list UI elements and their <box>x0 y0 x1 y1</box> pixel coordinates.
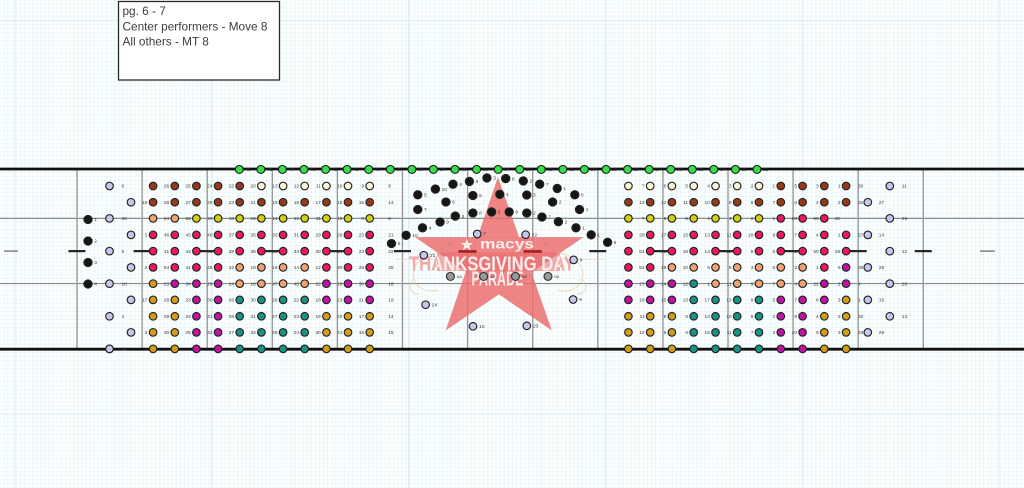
svg-text:4: 4 <box>459 182 462 188</box>
svg-text:3: 3 <box>838 298 841 304</box>
svg-text:4: 4 <box>506 192 509 198</box>
svg-text:43: 43 <box>185 233 191 239</box>
svg-text:25: 25 <box>207 200 213 206</box>
svg-text:23: 23 <box>337 298 343 304</box>
svg-text:★: ★ <box>461 237 474 253</box>
svg-text:28: 28 <box>359 265 365 271</box>
svg-text:24: 24 <box>185 314 191 320</box>
svg-text:15: 15 <box>705 330 711 336</box>
svg-text:All others - MT 8: All others - MT 8 <box>123 35 210 49</box>
svg-text:23: 23 <box>359 249 365 255</box>
svg-text:30: 30 <box>858 184 864 190</box>
svg-text:33: 33 <box>858 330 864 336</box>
svg-text:53: 53 <box>639 265 645 271</box>
svg-text:28: 28 <box>164 200 170 206</box>
svg-text:7: 7 <box>483 232 486 238</box>
svg-text:2: 2 <box>94 239 97 245</box>
svg-text:11: 11 <box>683 200 688 206</box>
svg-text:9: 9 <box>729 200 732 206</box>
svg-text:2: 2 <box>838 281 841 287</box>
svg-text:11: 11 <box>727 281 732 287</box>
svg-text:macys: macys <box>480 237 534 252</box>
svg-text:15: 15 <box>661 298 667 304</box>
svg-text:24: 24 <box>432 302 438 308</box>
svg-text:18: 18 <box>122 347 128 353</box>
svg-text:14: 14 <box>705 314 711 320</box>
svg-text:2: 2 <box>794 265 797 271</box>
svg-text:7: 7 <box>424 207 427 213</box>
svg-text:8: 8 <box>515 210 518 216</box>
svg-text:22: 22 <box>229 184 235 190</box>
svg-text:6: 6 <box>729 265 732 271</box>
svg-text:2: 2 <box>751 216 754 222</box>
svg-text:9: 9 <box>361 184 364 190</box>
svg-text:1: 1 <box>586 207 589 213</box>
svg-text:21: 21 <box>359 298 365 304</box>
svg-text:12: 12 <box>683 281 689 287</box>
svg-text:27: 27 <box>272 314 278 320</box>
svg-text:3: 3 <box>751 265 754 271</box>
svg-text:20: 20 <box>337 314 343 320</box>
svg-text:3: 3 <box>493 176 496 182</box>
svg-text:17: 17 <box>705 298 711 304</box>
svg-text:2: 2 <box>530 179 533 185</box>
svg-text:8: 8 <box>388 216 391 222</box>
svg-text:24: 24 <box>229 281 235 287</box>
svg-text:14: 14 <box>879 233 885 239</box>
svg-text:42: 42 <box>229 265 235 271</box>
svg-text:16: 16 <box>639 298 645 304</box>
svg-text:5: 5 <box>479 193 482 199</box>
svg-text:8: 8 <box>512 176 515 182</box>
svg-text:12: 12 <box>294 184 300 190</box>
svg-text:31: 31 <box>250 314 256 320</box>
svg-text:10: 10 <box>683 265 689 271</box>
svg-text:7: 7 <box>794 298 797 304</box>
svg-text:46: 46 <box>164 233 170 239</box>
svg-text:18: 18 <box>359 330 365 336</box>
svg-text:1: 1 <box>773 216 776 222</box>
svg-text:10: 10 <box>748 233 754 239</box>
svg-text:5: 5 <box>773 298 776 304</box>
svg-text:27: 27 <box>879 200 885 206</box>
svg-text:16: 16 <box>272 265 278 271</box>
svg-text:7: 7 <box>546 182 549 188</box>
svg-text:2: 2 <box>838 314 841 320</box>
svg-text:36: 36 <box>461 167 466 172</box>
svg-text:29: 29 <box>612 167 617 172</box>
svg-text:35: 35 <box>858 265 864 271</box>
svg-text:47: 47 <box>272 281 278 287</box>
svg-text:9: 9 <box>751 298 754 304</box>
svg-text:4: 4 <box>816 233 819 239</box>
svg-text:23: 23 <box>185 298 191 304</box>
svg-text:53: 53 <box>639 249 645 255</box>
svg-text:8: 8 <box>388 184 391 190</box>
svg-text:NA: NA <box>522 275 528 279</box>
svg-text:24: 24 <box>720 167 725 172</box>
svg-text:25: 25 <box>388 265 394 271</box>
svg-text:15: 15 <box>879 298 885 304</box>
svg-text:22: 22 <box>763 167 768 172</box>
svg-text:15: 15 <box>388 330 394 336</box>
svg-text:34: 34 <box>185 281 191 287</box>
svg-text:26: 26 <box>337 281 343 287</box>
svg-text:14: 14 <box>272 216 278 222</box>
svg-text:4: 4 <box>429 226 432 232</box>
svg-text:34: 34 <box>272 249 278 255</box>
svg-text:31: 31 <box>207 314 213 320</box>
svg-text:40: 40 <box>835 216 841 222</box>
svg-text:30: 30 <box>315 249 321 255</box>
svg-text:26: 26 <box>229 314 235 320</box>
svg-text:31: 31 <box>569 167 574 172</box>
svg-text:26: 26 <box>337 233 343 239</box>
svg-text:17: 17 <box>639 281 645 287</box>
svg-text:23: 23 <box>294 314 300 320</box>
svg-text:18: 18 <box>294 200 300 206</box>
svg-text:25: 25 <box>902 216 908 222</box>
svg-text:16: 16 <box>337 200 343 206</box>
svg-text:2: 2 <box>565 219 568 225</box>
svg-text:6: 6 <box>794 200 797 206</box>
svg-text:58: 58 <box>792 216 798 222</box>
svg-text:22: 22 <box>315 281 321 287</box>
svg-text:23: 23 <box>359 233 365 239</box>
svg-text:26: 26 <box>229 298 235 304</box>
svg-text:14: 14 <box>661 281 667 287</box>
svg-text:21: 21 <box>250 200 256 206</box>
svg-text:12: 12 <box>639 330 645 336</box>
svg-text:5: 5 <box>773 249 776 255</box>
svg-text:28: 28 <box>879 265 885 271</box>
svg-text:10: 10 <box>337 184 343 190</box>
svg-text:9: 9 <box>794 314 797 320</box>
svg-text:41: 41 <box>185 265 191 271</box>
svg-text:10: 10 <box>726 314 732 320</box>
svg-text:20: 20 <box>207 216 213 222</box>
svg-text:32: 32 <box>858 314 864 320</box>
svg-text:12: 12 <box>661 200 667 206</box>
svg-text:18: 18 <box>388 281 394 287</box>
svg-text:5: 5 <box>794 184 797 190</box>
svg-text:10: 10 <box>122 281 128 287</box>
svg-text:2: 2 <box>533 211 536 217</box>
svg-text:1: 1 <box>94 217 97 223</box>
svg-text:20: 20 <box>122 216 128 222</box>
svg-text:26: 26 <box>272 298 278 304</box>
svg-text:3: 3 <box>729 184 732 190</box>
svg-text:33: 33 <box>272 233 278 239</box>
svg-text:50: 50 <box>813 249 819 255</box>
svg-text:28: 28 <box>272 330 278 336</box>
svg-text:5: 5 <box>685 216 688 222</box>
svg-text:31: 31 <box>294 233 300 239</box>
svg-text:5: 5 <box>816 330 819 336</box>
svg-text:19: 19 <box>250 265 256 271</box>
svg-text:29: 29 <box>315 233 321 239</box>
svg-text:35: 35 <box>483 167 488 172</box>
svg-text:7: 7 <box>642 184 645 190</box>
svg-text:11: 11 <box>727 330 732 336</box>
svg-text:25: 25 <box>185 330 191 336</box>
svg-text:2: 2 <box>751 184 754 190</box>
svg-text:23: 23 <box>185 216 191 222</box>
svg-text:30: 30 <box>337 265 343 271</box>
svg-text:44: 44 <box>289 167 294 172</box>
svg-text:8: 8 <box>751 200 754 206</box>
svg-text:13: 13 <box>683 298 689 304</box>
svg-text:7: 7 <box>773 200 776 206</box>
svg-text:17: 17 <box>661 233 667 239</box>
svg-text:5: 5 <box>122 249 125 255</box>
svg-text:4: 4 <box>94 282 97 288</box>
svg-text:8: 8 <box>707 265 710 271</box>
svg-text:11: 11 <box>902 184 907 190</box>
svg-text:44: 44 <box>185 249 191 255</box>
svg-text:7: 7 <box>751 330 754 336</box>
svg-text:3: 3 <box>838 330 841 336</box>
svg-text:8: 8 <box>751 249 754 255</box>
svg-text:14: 14 <box>388 200 394 206</box>
svg-text:6: 6 <box>122 184 125 190</box>
svg-text:26: 26 <box>164 184 170 190</box>
svg-text:23: 23 <box>164 281 170 287</box>
svg-text:11: 11 <box>316 184 321 190</box>
svg-text:38: 38 <box>229 249 235 255</box>
svg-text:45: 45 <box>267 167 272 172</box>
svg-text:5: 5 <box>685 314 688 320</box>
svg-text:5: 5 <box>685 184 688 190</box>
svg-text:28: 28 <box>634 167 639 172</box>
svg-text:4: 4 <box>816 314 819 320</box>
svg-text:3: 3 <box>145 330 148 336</box>
svg-text:3: 3 <box>773 330 776 336</box>
svg-text:19: 19 <box>388 298 394 304</box>
svg-text:30: 30 <box>250 298 256 304</box>
svg-text:46: 46 <box>246 167 251 172</box>
svg-text:28: 28 <box>164 298 170 304</box>
svg-text:1: 1 <box>597 233 600 239</box>
svg-text:29: 29 <box>164 314 170 320</box>
svg-text:7: 7 <box>642 216 645 222</box>
svg-text:30: 30 <box>207 298 213 304</box>
svg-text:18: 18 <box>229 216 235 222</box>
svg-text:32: 32 <box>207 330 213 336</box>
svg-text:22: 22 <box>388 249 394 255</box>
svg-text:1: 1 <box>858 298 861 304</box>
svg-text:10: 10 <box>337 216 343 222</box>
svg-text:38: 38 <box>418 167 423 172</box>
svg-text:1: 1 <box>773 184 776 190</box>
svg-text:13: 13 <box>705 233 711 239</box>
svg-text:2: 2 <box>794 249 797 255</box>
svg-text:2: 2 <box>773 314 776 320</box>
svg-text:3: 3 <box>462 214 465 220</box>
svg-text:5: 5 <box>398 241 401 247</box>
svg-text:NA: NA <box>457 275 463 279</box>
svg-text:16: 16 <box>250 281 256 287</box>
svg-text:54: 54 <box>164 265 170 271</box>
svg-text:27: 27 <box>185 200 191 206</box>
svg-text:4: 4 <box>707 184 710 190</box>
svg-text:21: 21 <box>337 330 343 336</box>
svg-text:27: 27 <box>655 167 660 172</box>
svg-text:9: 9 <box>446 220 449 226</box>
svg-text:20: 20 <box>639 233 645 239</box>
svg-text:39: 39 <box>397 167 402 172</box>
svg-text:21: 21 <box>388 233 394 239</box>
svg-text:22: 22 <box>294 298 300 304</box>
svg-text:11: 11 <box>640 314 645 320</box>
svg-text:14: 14 <box>294 265 300 271</box>
svg-text:6: 6 <box>664 216 667 222</box>
svg-text:2: 2 <box>559 200 562 206</box>
svg-text:11: 11 <box>727 233 732 239</box>
svg-text:3: 3 <box>533 193 536 199</box>
svg-text:6: 6 <box>614 240 617 246</box>
svg-text:7: 7 <box>773 281 776 287</box>
svg-text:25: 25 <box>699 167 704 172</box>
svg-text:8: 8 <box>479 211 482 217</box>
svg-text:45: 45 <box>294 281 300 287</box>
svg-text:57: 57 <box>858 233 864 239</box>
svg-text:1: 1 <box>838 233 841 239</box>
svg-text:4: 4 <box>122 314 125 320</box>
svg-text:18: 18 <box>315 298 321 304</box>
svg-text:21: 21 <box>430 253 436 259</box>
svg-text:5: 5 <box>424 193 427 199</box>
svg-text:30: 30 <box>164 330 170 336</box>
svg-text:19: 19 <box>661 265 667 271</box>
svg-text:24: 24 <box>164 216 170 222</box>
svg-text:17: 17 <box>142 298 148 304</box>
svg-text:34: 34 <box>504 167 509 172</box>
svg-text:59: 59 <box>813 216 819 222</box>
svg-text:22: 22 <box>813 281 819 287</box>
svg-text:26: 26 <box>902 281 908 287</box>
svg-text:23: 23 <box>229 200 235 206</box>
svg-text:10: 10 <box>442 187 448 193</box>
svg-text:32: 32 <box>548 167 553 172</box>
svg-text:23: 23 <box>742 167 747 172</box>
svg-text:4: 4 <box>707 216 710 222</box>
svg-text:15: 15 <box>359 200 365 206</box>
svg-text:37: 37 <box>229 233 235 239</box>
svg-text:45: 45 <box>207 265 213 271</box>
svg-text:23: 23 <box>533 324 539 330</box>
svg-text:2: 2 <box>838 200 841 206</box>
svg-text:6: 6 <box>664 184 667 190</box>
svg-text:7: 7 <box>548 215 551 221</box>
svg-text:33: 33 <box>294 249 300 255</box>
svg-text:20: 20 <box>250 184 256 190</box>
svg-text:22: 22 <box>532 232 538 238</box>
svg-text:24: 24 <box>294 330 300 336</box>
svg-text:24: 24 <box>337 249 343 255</box>
svg-text:9: 9 <box>579 297 582 303</box>
svg-text:4: 4 <box>816 200 819 206</box>
svg-text:41: 41 <box>353 167 358 172</box>
svg-text:12: 12 <box>902 249 908 255</box>
svg-text:pg. 6 - 7: pg. 6 - 7 <box>123 4 166 18</box>
svg-text:6: 6 <box>838 265 841 271</box>
svg-text:26: 26 <box>207 281 213 287</box>
svg-text:17: 17 <box>315 200 321 206</box>
svg-text:12: 12 <box>726 249 732 255</box>
svg-text:1: 1 <box>582 226 585 232</box>
svg-text:13: 13 <box>902 314 908 320</box>
svg-text:8: 8 <box>664 314 667 320</box>
svg-text:6: 6 <box>452 200 455 206</box>
svg-text:9: 9 <box>476 179 479 185</box>
svg-text:Center performers - Move 8: Center performers - Move 8 <box>123 19 268 33</box>
svg-text:1: 1 <box>145 233 148 239</box>
svg-text:3: 3 <box>94 260 97 266</box>
svg-text:32: 32 <box>250 330 256 336</box>
svg-text:16: 16 <box>250 216 256 222</box>
svg-text:9: 9 <box>361 216 364 222</box>
svg-text:8: 8 <box>580 258 583 264</box>
svg-text:6: 6 <box>685 330 688 336</box>
svg-text:1: 1 <box>563 186 566 192</box>
svg-text:35: 35 <box>250 233 256 239</box>
svg-text:17: 17 <box>359 314 365 320</box>
svg-text:9: 9 <box>751 281 754 287</box>
svg-text:1: 1 <box>816 265 819 271</box>
svg-text:6: 6 <box>581 193 584 199</box>
svg-text:48: 48 <box>661 249 667 255</box>
svg-text:10: 10 <box>792 330 798 336</box>
svg-text:6: 6 <box>751 314 754 320</box>
svg-text:42: 42 <box>332 167 337 172</box>
svg-text:13: 13 <box>726 298 732 304</box>
svg-text:2: 2 <box>145 265 148 271</box>
svg-text:27: 27 <box>229 330 235 336</box>
svg-text:16: 16 <box>142 200 148 206</box>
svg-text:9: 9 <box>773 233 776 239</box>
svg-text:29: 29 <box>879 330 885 336</box>
svg-text:1: 1 <box>838 184 841 190</box>
svg-text:56: 56 <box>835 249 841 255</box>
svg-text:24: 24 <box>207 184 213 190</box>
svg-text:36: 36 <box>250 249 256 255</box>
svg-text:8: 8 <box>816 298 819 304</box>
svg-text:30: 30 <box>591 167 596 172</box>
svg-text:15: 15 <box>683 233 689 239</box>
svg-text:14: 14 <box>705 249 711 255</box>
svg-text:3: 3 <box>729 216 732 222</box>
svg-text:3: 3 <box>816 184 819 190</box>
svg-text:41: 41 <box>164 249 170 255</box>
svg-text:30: 30 <box>359 281 365 287</box>
svg-text:10: 10 <box>412 233 418 239</box>
svg-text:12: 12 <box>294 216 300 222</box>
svg-text:10: 10 <box>705 200 711 206</box>
svg-text:33: 33 <box>526 167 531 172</box>
svg-text:9: 9 <box>664 330 667 336</box>
svg-text:NA: NA <box>490 275 496 279</box>
svg-text:26: 26 <box>677 167 682 172</box>
svg-text:4: 4 <box>794 281 797 287</box>
svg-text:12: 12 <box>315 265 321 271</box>
svg-text:16: 16 <box>683 249 689 255</box>
svg-text:13: 13 <box>272 184 278 190</box>
svg-text:37: 37 <box>440 167 445 172</box>
svg-text:10: 10 <box>479 324 485 330</box>
svg-text:NA: NA <box>554 275 560 279</box>
svg-text:25: 25 <box>185 184 191 190</box>
